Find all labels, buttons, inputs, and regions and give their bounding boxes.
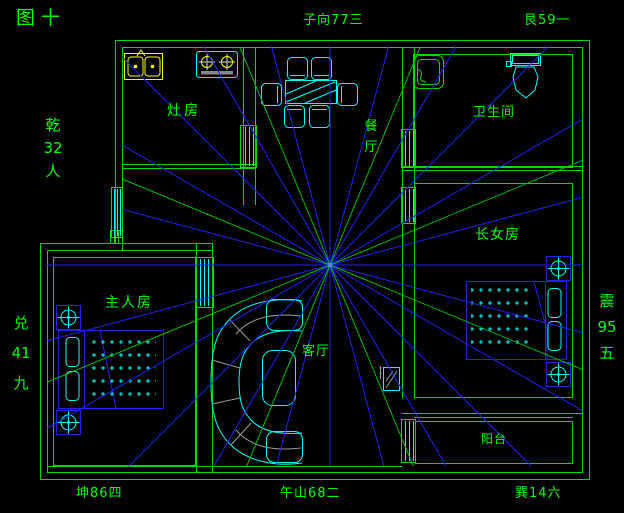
window-living-balcony	[402, 420, 416, 463]
tv	[380, 366, 400, 391]
lamp	[57, 411, 81, 435]
sofa	[211, 300, 303, 465]
room-daughter-label: 长女房	[475, 227, 520, 243]
room-kitchen-label: 灶房	[167, 103, 201, 119]
kitchen-door	[241, 126, 257, 168]
window-dining-bathroom	[402, 130, 416, 168]
drawing-title: 图十	[16, 10, 66, 26]
window-hall-daughter	[402, 188, 416, 224]
room-dining-label: 餐厅	[363, 74, 379, 200]
lamp	[57, 306, 81, 330]
floor-plan-drawing	[0, 0, 624, 513]
compass-south-label: 午山68二	[280, 486, 341, 502]
dining-table-set	[262, 58, 358, 128]
kitchen-stove	[197, 52, 238, 78]
compass-southeast-label: 巽14六	[515, 486, 562, 502]
cad-canvas[interactable]: 图十 乾32人 兑41九 震95五 子向77三 艮59一 坤86四 午山68二 …	[0, 0, 624, 513]
wing-top-wall	[40, 244, 213, 251]
coffee-table	[263, 351, 296, 406]
compass-north-label: 子向77三	[303, 13, 364, 29]
daughter-balcony-wall	[402, 414, 583, 418]
lamp	[547, 257, 571, 281]
washbasin	[414, 56, 444, 89]
compass-east-label: 震95五	[594, 236, 620, 418]
compass-southwest-label: 坤86四	[76, 486, 123, 502]
daughter-bed	[467, 282, 567, 360]
room-living-label: 客厅	[302, 344, 330, 360]
compass-west-label: 兑41九	[8, 248, 34, 458]
kitchen-walls	[122, 47, 256, 205]
room-bathroom-label: 卫生间	[473, 105, 515, 121]
room-balcony-label: 阳台	[481, 431, 507, 447]
compass-northeast-label: 艮59一	[524, 13, 571, 29]
lamp	[547, 363, 571, 387]
compass-northwest-label: 乾32人	[40, 68, 66, 229]
master-bed	[59, 331, 164, 409]
room-master-label: 主人房	[105, 295, 153, 311]
fan-center-point	[328, 263, 332, 267]
